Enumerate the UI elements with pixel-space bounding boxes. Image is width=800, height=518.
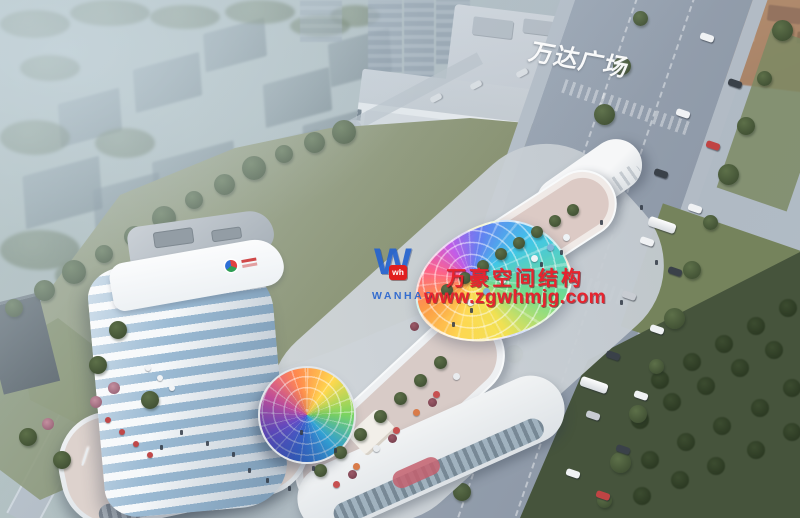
tree-cluster	[0, 10, 70, 38]
grove-tree	[697, 377, 715, 395]
watermark-badge: wh	[389, 265, 407, 280]
grove-tree	[731, 359, 749, 377]
person	[288, 486, 291, 491]
grove-tree	[747, 441, 765, 459]
background-building	[58, 88, 122, 148]
grove-tree	[651, 371, 669, 389]
rainbow-dome	[258, 366, 356, 464]
grove-tree	[765, 341, 783, 359]
tree-cluster	[0, 230, 80, 270]
grove-tree	[783, 423, 800, 441]
rooftop-unit	[472, 16, 514, 39]
grove-tree	[641, 451, 659, 469]
grove-tree	[747, 317, 765, 335]
background-building	[263, 67, 332, 128]
grove-tree	[779, 299, 797, 317]
residential-tower	[404, 0, 434, 80]
grove-tree	[633, 487, 651, 505]
background-building	[203, 18, 267, 73]
tree-cluster	[70, 0, 150, 26]
grove-tree	[677, 433, 695, 451]
watermark: W wh WANHAO 万豪空间结构 www.zgwhmjg.com	[372, 250, 608, 316]
rooftop-equipment	[211, 226, 242, 242]
background-building	[133, 52, 202, 113]
tree-cluster	[20, 55, 80, 81]
grove-tree	[751, 399, 769, 417]
rendering-scene: 万达广场 W wh WANHAO 万豪空间结构 www.zgwhmjg.com	[0, 0, 800, 518]
rooftop-unit	[767, 5, 800, 25]
grove-tree	[707, 457, 725, 475]
tree-cluster	[225, 0, 295, 24]
crosswalk	[561, 79, 693, 136]
grove-tree	[663, 393, 681, 411]
residential-tower	[300, 0, 342, 42]
residential-tower	[368, 0, 402, 72]
tower-brand-text	[241, 257, 256, 262]
grove-tree	[683, 353, 701, 371]
tree-cluster	[0, 120, 70, 155]
grove-tree	[713, 417, 731, 435]
grove-tree	[671, 471, 689, 489]
rooftop-equipment	[153, 227, 195, 248]
tree-cluster	[95, 128, 155, 158]
grove-tree	[783, 379, 800, 397]
tower-brand-logo-icon	[224, 259, 238, 273]
background-building	[22, 156, 102, 230]
tree-cluster	[150, 5, 220, 29]
grove-tree	[715, 335, 733, 353]
grove-tree	[631, 411, 649, 429]
watermark-url: www.zgwhmjg.com	[424, 287, 606, 309]
